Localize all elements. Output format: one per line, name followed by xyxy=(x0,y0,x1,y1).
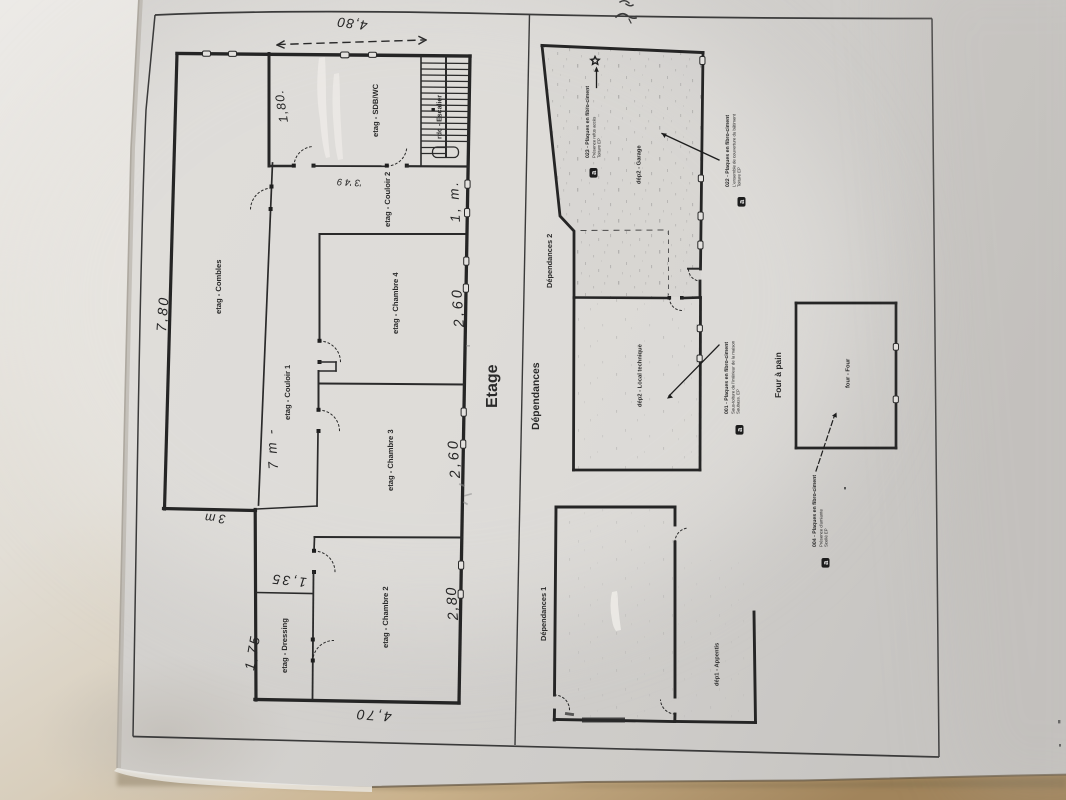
svg-text:etag - Chambre 2: etag - Chambre 2 xyxy=(381,586,390,648)
svg-text:dép2 - Garage: dép2 - Garage xyxy=(636,145,643,184)
svg-text:Four à pain: Four à pain xyxy=(773,352,783,398)
svg-text:etag - Dressing: etag - Dressing xyxy=(280,618,289,673)
svg-text:Scellé EP: Scellé EP xyxy=(824,528,829,547)
svg-text:7 m -: 7 m - xyxy=(263,427,281,470)
svg-text:2,80: 2,80 xyxy=(444,586,462,622)
svg-text:7,80: 7,80 xyxy=(153,295,171,332)
svg-text:4,70: 4,70 xyxy=(354,706,392,725)
svg-text:Toiture EP: Toiture EP xyxy=(597,138,602,158)
svg-text:1, m.: 1, m. xyxy=(446,179,463,222)
svg-text:022 - Plaques en fibro-ciment: 022 - Plaques en fibro-ciment xyxy=(725,115,731,187)
svg-text:four - Four: four - Four xyxy=(845,358,852,388)
svg-text:023 - Plaques en fibro-ciment: 023 - Plaques en fibro-ciment xyxy=(585,86,591,158)
svg-text:2,60: 2,60 xyxy=(449,287,468,329)
svg-text:Dépendances 2: Dépendances 2 xyxy=(545,234,554,288)
svg-text:etag - SDB/WC: etag - SDB/WC xyxy=(371,83,380,137)
svg-text:004 - Plaques en fibro-ciment: 004 - Plaques en fibro-ciment xyxy=(812,475,818,547)
svg-text:Dépendances 1: Dépendances 1 xyxy=(539,587,548,641)
svg-text:etag - Couloir 1: etag - Couloir 1 xyxy=(283,364,292,420)
svg-text:Soubass. EP: Soubass. EP xyxy=(736,389,741,414)
svg-text:2,60: 2,60 xyxy=(445,438,464,480)
svg-text:3 m: 3 m xyxy=(204,511,226,526)
svg-text:etag - Combles: etag - Combles xyxy=(214,260,223,314)
svg-text:rdc - Escalier: rdc - Escalier xyxy=(436,95,444,139)
svg-text:Toiture EP: Toiture EP xyxy=(737,167,742,187)
svg-text:etag - Chambre 4: etag - Chambre 4 xyxy=(391,272,400,334)
svg-text:dép1 - Appentis: dép1 - Appentis xyxy=(714,643,721,686)
svg-text:Etage: Etage xyxy=(484,364,501,408)
svg-text:etag - Couloir 2: etag - Couloir 2 xyxy=(383,172,392,227)
svg-text:'3 '4 9: '3 '4 9 xyxy=(336,176,362,188)
svg-text:001 - Plaques en fibro-ciment: 001 - Plaques en fibro-ciment xyxy=(724,342,730,414)
svg-text:etag - Chambre 3: etag - Chambre 3 xyxy=(386,429,395,491)
svg-text:dép2 - Local technique: dép2 - Local technique xyxy=(637,343,644,407)
svg-text:Dépendances: Dépendances xyxy=(531,362,542,430)
